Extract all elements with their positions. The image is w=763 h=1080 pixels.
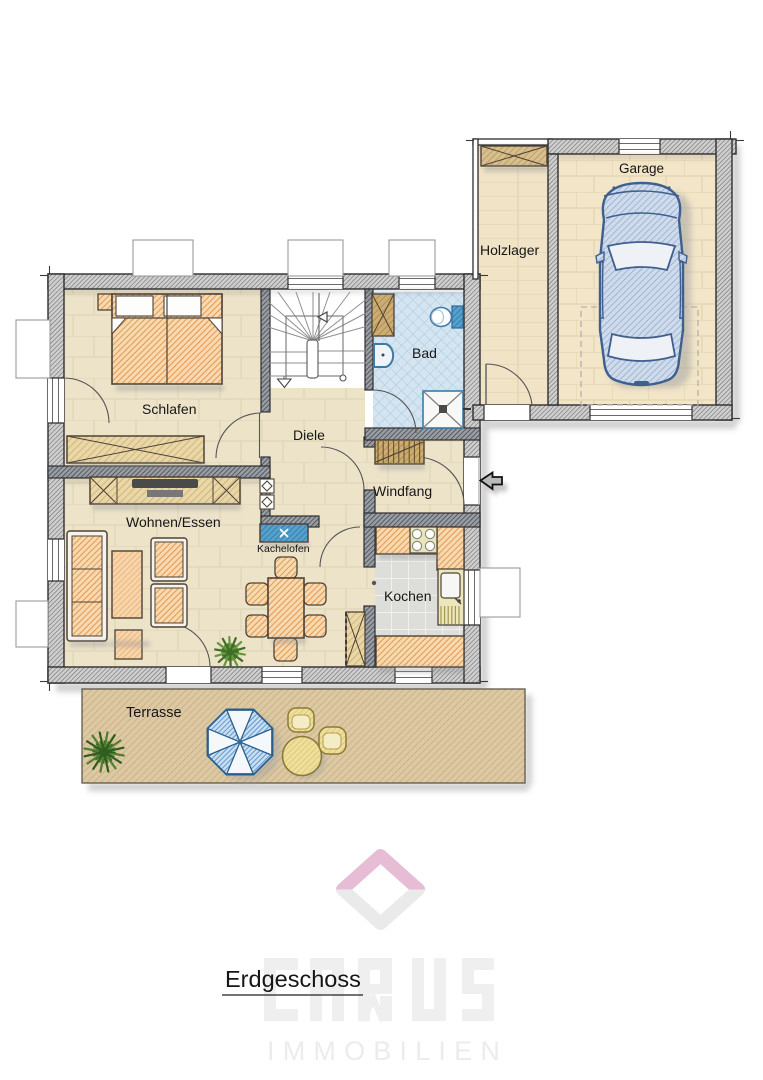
svg-text:Kochen: Kochen: [384, 588, 431, 604]
svg-text:Wohnen/Essen: Wohnen/Essen: [126, 514, 221, 530]
svg-text:Schlafen: Schlafen: [142, 401, 196, 417]
svg-text:Holzlager: Holzlager: [480, 242, 539, 258]
svg-text:Windfang: Windfang: [373, 483, 432, 499]
svg-text:Bad: Bad: [412, 345, 437, 361]
svg-text:Kachelofen: Kachelofen: [257, 543, 310, 555]
svg-text:Diele: Diele: [293, 427, 325, 443]
svg-text:Terrasse: Terrasse: [126, 705, 182, 721]
svg-text:Garage: Garage: [619, 161, 664, 176]
svg-text:Erdgeschoss: Erdgeschoss: [225, 966, 361, 992]
svg-text:IMMOBILIEN: IMMOBILIEN: [267, 1036, 508, 1066]
